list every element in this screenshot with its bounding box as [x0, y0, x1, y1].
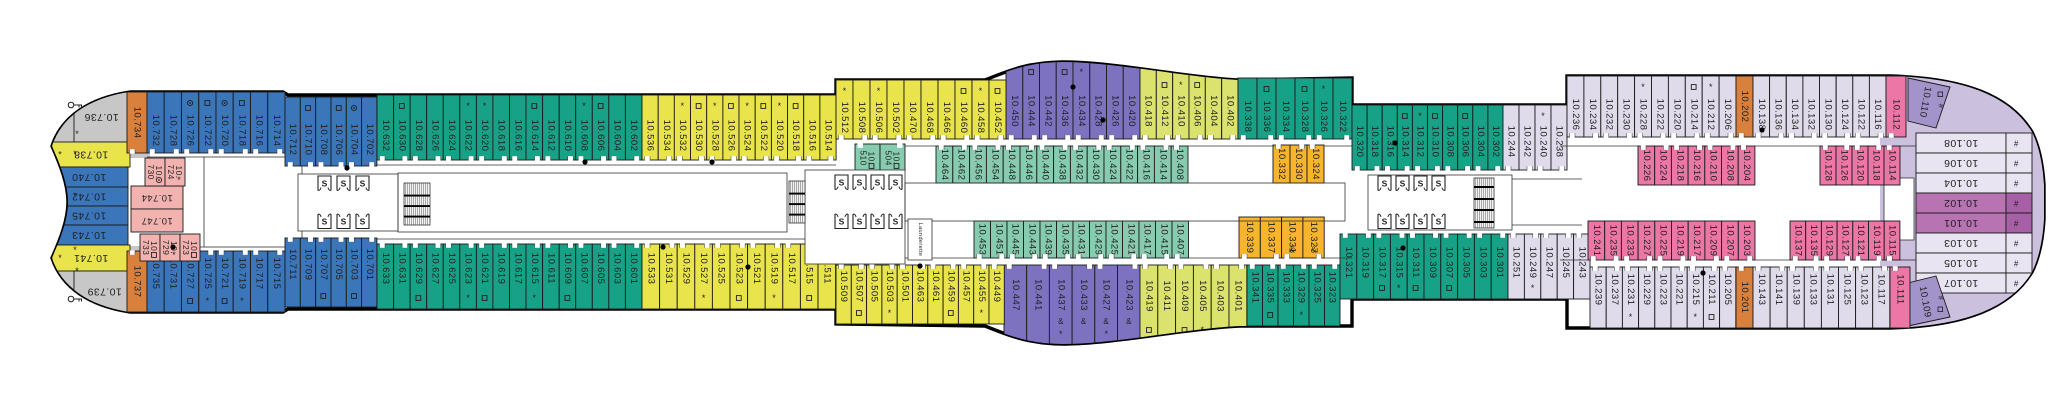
svg-text:10.449: 10.449: [991, 271, 1002, 303]
svg-text:10.411: 10.411: [1161, 280, 1172, 311]
svg-text:10.427: 10.427: [1101, 279, 1112, 311]
svg-text:10.526: 10.526: [725, 120, 736, 152]
svg-text:10.627: 10.627: [430, 253, 441, 285]
svg-text:*: *: [240, 296, 244, 306]
svg-text:10.238: 10.238: [1554, 126, 1565, 158]
svg-text:10.611: 10.611: [545, 253, 556, 284]
svg-text:10.621: 10.621: [479, 253, 490, 285]
svg-text:10.629: 10.629: [413, 253, 424, 285]
svg-text:10.115: 10.115: [1887, 225, 1898, 256]
svg-text:*: *: [1531, 283, 1535, 293]
svg-text:10.403: 10.403: [1215, 280, 1226, 312]
svg-text:10.458: 10.458: [975, 102, 986, 134]
svg-text:&: &: [1103, 317, 1109, 326]
svg-text:10.708: 10.708: [318, 124, 329, 156]
svg-text:*: *: [73, 149, 77, 159]
svg-text:*: *: [979, 86, 983, 96]
svg-text:10.321: 10.321: [1343, 247, 1354, 279]
svg-text:10.607: 10.607: [579, 253, 590, 285]
svg-text:10.531: 10.531: [663, 253, 674, 285]
svg-text:10.409: 10.409: [1179, 280, 1190, 312]
svg-text:*: *: [582, 101, 586, 111]
svg-text:S: S: [1400, 216, 1406, 226]
svg-text:10.202: 10.202: [1739, 91, 1750, 123]
svg-text:10.517: 10.517: [786, 253, 797, 285]
svg-text:10.532: 10.532: [677, 120, 688, 152]
svg-text:10.215: 10.215: [1690, 274, 1701, 306]
svg-text:*: *: [1059, 329, 1063, 339]
svg-text:*: *: [1080, 67, 1084, 77]
svg-text:10.468: 10.468: [924, 102, 935, 134]
svg-text:*: *: [713, 101, 717, 111]
svg-text:10.620: 10.620: [479, 120, 490, 152]
svg-text:*: *: [75, 129, 79, 139]
svg-text:10.426: 10.426: [1109, 95, 1120, 127]
svg-text:10.221: 10.221: [1674, 274, 1685, 306]
svg-text:#: #: [2013, 179, 2018, 188]
svg-text:10.742: 10.742: [72, 191, 107, 203]
svg-text:10.502: 10.502: [890, 102, 901, 134]
svg-text:10.402: 10.402: [1224, 95, 1235, 127]
svg-text:10.624: 10.624: [446, 120, 457, 152]
svg-text:10.205: 10.205: [1722, 274, 1733, 306]
svg-text:10.122: 10.122: [1856, 99, 1867, 131]
svg-text:*: *: [58, 253, 62, 263]
svg-text:10.207: 10.207: [1724, 225, 1735, 257]
svg-text:10.701: 10.701: [364, 249, 375, 281]
svg-text:*: *: [172, 250, 176, 260]
svg-text:*: *: [177, 175, 181, 185]
svg-text:*: *: [1629, 312, 1633, 322]
svg-text:10.707: 10.707: [318, 249, 329, 281]
svg-text:10.509: 10.509: [838, 271, 849, 303]
svg-text:10.240: 10.240: [1538, 126, 1549, 158]
svg-text:10.434: 10.434: [1076, 95, 1087, 127]
svg-text:10.606: 10.606: [595, 120, 606, 152]
svg-text:10.234: 10.234: [1587, 99, 1598, 131]
svg-text:10.227: 10.227: [1641, 225, 1652, 257]
svg-text:10.712: 10.712: [287, 124, 298, 156]
svg-text:10.533: 10.533: [645, 253, 656, 285]
svg-text:*: *: [843, 86, 847, 96]
svg-text:10.522: 10.522: [758, 120, 769, 152]
svg-text:10.134: 10.134: [1789, 99, 1800, 131]
svg-text:10.439: 10.439: [1043, 224, 1054, 256]
svg-text:10.319: 10.319: [1360, 247, 1371, 279]
svg-text:10.105: 10.105: [1944, 257, 1979, 269]
svg-text:10.108: 10.108: [1944, 137, 1979, 149]
svg-text:10.308: 10.308: [1445, 126, 1456, 158]
svg-text:10.324: 10.324: [1310, 148, 1321, 180]
svg-text:S: S: [341, 216, 347, 226]
svg-text:10.459: 10.459: [945, 271, 956, 303]
svg-text:*: *: [1179, 80, 1183, 90]
svg-text:10.336: 10.336: [1261, 101, 1272, 133]
svg-text:S: S: [360, 178, 366, 188]
svg-text:10.304: 10.304: [1475, 126, 1486, 158]
svg-text:10.138: 10.138: [1756, 99, 1767, 131]
svg-text:&: &: [1126, 317, 1132, 326]
svg-text:10.631: 10.631: [396, 253, 407, 285]
svg-text:*: *: [772, 293, 776, 303]
svg-text:10.608: 10.608: [579, 120, 590, 152]
svg-text:10.236: 10.236: [1570, 99, 1581, 131]
svg-text:10.450: 10.450: [1009, 95, 1020, 127]
svg-text:10.116: 10.116: [1872, 99, 1883, 130]
svg-text:10.732: 10.732: [150, 115, 161, 147]
svg-text:10.717: 10.717: [254, 258, 265, 290]
svg-text:724: 724: [166, 164, 176, 179]
svg-text:10.623: 10.623: [463, 253, 474, 285]
svg-text:10.610: 10.610: [562, 120, 573, 152]
svg-text:10.328: 10.328: [1299, 101, 1310, 133]
svg-text:10.322: 10.322: [1337, 101, 1348, 133]
svg-text:10.453: 10.453: [977, 224, 988, 256]
svg-text:10.245: 10.245: [1560, 247, 1571, 279]
svg-text:10.139: 10.139: [1790, 274, 1801, 306]
svg-text:10.219: 10.219: [1674, 225, 1685, 257]
svg-text:10.117: 10.117: [1876, 274, 1887, 305]
svg-text:10.339: 10.339: [1244, 222, 1255, 254]
svg-text:10.741: 10.741: [74, 252, 109, 264]
svg-text:10.104: 10.104: [1944, 177, 1979, 189]
svg-text:10.214: 10.214: [1688, 99, 1699, 131]
svg-text:10.437: 10.437: [1055, 279, 1066, 311]
svg-text:10.243: 10.243: [1576, 247, 1587, 279]
svg-text:10.217: 10.217: [1691, 225, 1702, 257]
svg-text:10.452: 10.452: [992, 102, 1003, 134]
svg-text:&: &: [1058, 317, 1064, 326]
svg-text:10.237: 10.237: [1609, 274, 1620, 306]
svg-text:10.408: 10.408: [1174, 149, 1185, 181]
svg-text:10.508: 10.508: [856, 102, 867, 134]
svg-text:10.128: 10.128: [1823, 150, 1834, 182]
svg-text:*: *: [533, 293, 537, 303]
svg-text:*: *: [877, 86, 881, 96]
svg-text:10.325: 10.325: [1311, 272, 1322, 304]
svg-text:10.617: 10.617: [512, 253, 523, 285]
svg-text:10.209: 10.209: [1708, 225, 1719, 257]
svg-text:10.506: 10.506: [873, 102, 884, 134]
svg-text:10.536: 10.536: [645, 120, 656, 152]
svg-text:*: *: [1709, 82, 1713, 92]
svg-text:#: #: [2013, 139, 2018, 148]
svg-text:10.129: 10.129: [1824, 225, 1835, 257]
svg-text:10.208: 10.208: [1724, 150, 1735, 182]
svg-text:10.229: 10.229: [1641, 274, 1652, 306]
svg-text:10.223: 10.223: [1657, 274, 1668, 306]
svg-text:10.220: 10.220: [1671, 99, 1682, 131]
svg-text:&: &: [1311, 246, 1317, 255]
svg-text:10.719: 10.719: [236, 258, 247, 290]
svg-text:S: S: [1382, 178, 1388, 188]
svg-text:10.332: 10.332: [1276, 148, 1287, 180]
svg-text:*: *: [1322, 84, 1326, 94]
svg-text:504: 504: [884, 150, 894, 165]
svg-text:*: *: [1397, 283, 1401, 293]
svg-text:10.447: 10.447: [1010, 279, 1021, 311]
svg-text:10.127: 10.127: [1839, 225, 1850, 257]
svg-text:S: S: [893, 216, 899, 226]
svg-text:10.464: 10.464: [939, 149, 950, 181]
svg-text:*: *: [73, 191, 77, 201]
svg-text:10.422: 10.422: [1124, 149, 1135, 181]
svg-text:10.418: 10.418: [1143, 95, 1154, 127]
svg-text:10.206: 10.206: [1722, 99, 1733, 131]
svg-text:*: *: [483, 101, 487, 111]
svg-text:10.711: 10.711: [287, 249, 298, 280]
svg-text:10.728: 10.728: [167, 115, 178, 147]
svg-text:10.401: 10.401: [1232, 280, 1243, 312]
svg-text:10.335: 10.335: [1265, 272, 1276, 304]
svg-text:10.416: 10.416: [1141, 149, 1152, 181]
svg-text:10.312: 10.312: [1415, 126, 1426, 158]
svg-text:10.736: 10.736: [84, 111, 119, 123]
svg-text:10.417: 10.417: [1142, 224, 1153, 256]
svg-text:10.710: 10.710: [303, 124, 314, 156]
svg-text:10.731: 10.731: [167, 258, 178, 290]
svg-text:10.425: 10.425: [1109, 224, 1120, 256]
svg-text:10.460: 10.460: [958, 102, 969, 134]
svg-text:10.305: 10.305: [1461, 247, 1472, 279]
svg-text:10.628: 10.628: [413, 120, 424, 152]
svg-text:10.412: 10.412: [1159, 95, 1170, 127]
svg-text:10.135: 10.135: [1808, 225, 1819, 257]
svg-text:10.735: 10.735: [150, 258, 161, 290]
svg-text:10.528: 10.528: [709, 120, 720, 152]
svg-text:10.716: 10.716: [254, 115, 265, 147]
svg-text:10.309: 10.309: [1427, 247, 1438, 279]
svg-text:10.211: 10.211: [1706, 274, 1717, 305]
svg-text:10.430: 10.430: [1090, 149, 1101, 181]
svg-text:10.461: 10.461: [930, 271, 941, 303]
svg-text:10.715: 10.715: [271, 258, 282, 290]
svg-text:10.228: 10.228: [1638, 99, 1649, 131]
svg-text:S: S: [893, 177, 899, 187]
svg-text:10.103: 10.103: [1944, 237, 1979, 249]
svg-text:10.111: 10.111: [1895, 274, 1906, 304]
svg-text:10.141: 10.141: [1773, 274, 1784, 306]
svg-text:10.239: 10.239: [1593, 274, 1604, 306]
svg-text:10.745: 10.745: [72, 210, 107, 222]
svg-text:10.338: 10.338: [1242, 101, 1253, 133]
svg-text:10.106: 10.106: [1944, 157, 1979, 169]
svg-text:#: #: [2013, 239, 2018, 248]
svg-text:10.519: 10.519: [769, 253, 780, 285]
svg-text:S: S: [1418, 216, 1424, 226]
svg-text:10.616: 10.616: [512, 120, 523, 152]
svg-text:10.470: 10.470: [907, 102, 918, 134]
svg-text:10.604: 10.604: [612, 120, 623, 152]
svg-text:Launderette: Launderette: [917, 223, 923, 257]
svg-text:723: 723: [181, 240, 191, 255]
svg-text:#: #: [2013, 279, 2018, 288]
svg-text:10.455: 10.455: [976, 271, 987, 303]
svg-text:&: &: [1290, 246, 1296, 255]
svg-text:10.233: 10.233: [1624, 225, 1635, 257]
svg-text:10.622: 10.622: [463, 120, 474, 152]
svg-text:S: S: [1400, 178, 1406, 188]
svg-text:10.466: 10.466: [941, 102, 952, 134]
svg-text:S: S: [1382, 216, 1388, 226]
svg-text:10.630: 10.630: [396, 120, 407, 152]
svg-text:*: *: [466, 101, 470, 111]
svg-text:10.431: 10.431: [1076, 224, 1087, 256]
svg-text:10.432: 10.432: [1073, 149, 1084, 181]
svg-text:10.334: 10.334: [1280, 101, 1291, 133]
svg-text:S: S: [875, 216, 881, 226]
svg-text:10.120: 10.120: [1855, 150, 1866, 182]
svg-text:10.726: 10.726: [185, 115, 196, 147]
svg-text:10.315: 10.315: [1393, 247, 1404, 279]
svg-text:10.632: 10.632: [380, 120, 391, 152]
svg-text:10.703: 10.703: [349, 249, 360, 281]
svg-text:10.602: 10.602: [628, 120, 639, 152]
svg-text:S: S: [875, 177, 881, 187]
svg-text:10.143: 10.143: [1756, 274, 1767, 306]
svg-text:10.232: 10.232: [1604, 99, 1615, 131]
svg-text:10.503: 10.503: [884, 271, 895, 303]
svg-text:10.507: 10.507: [853, 271, 864, 303]
svg-text:10.747: 10.747: [141, 215, 172, 226]
svg-text:10.443: 10.443: [1026, 224, 1037, 256]
svg-text:S: S: [857, 216, 863, 226]
svg-text:10.414: 10.414: [1157, 149, 1168, 181]
svg-text:10.626: 10.626: [430, 120, 441, 152]
svg-text:10.442: 10.442: [1042, 95, 1053, 127]
svg-text:10.514: 10.514: [823, 120, 834, 152]
svg-text:10.501: 10.501: [899, 271, 910, 303]
svg-text:733: 733: [141, 240, 151, 255]
svg-text:*: *: [681, 101, 685, 111]
svg-text:10.326: 10.326: [1318, 101, 1329, 133]
svg-text:10.739: 10.739: [87, 286, 122, 298]
svg-text:10.330: 10.330: [1293, 148, 1304, 180]
svg-text:S: S: [360, 216, 366, 226]
svg-text:10.446: 10.446: [1023, 149, 1034, 181]
svg-text:10.612: 10.612: [545, 120, 556, 152]
svg-text:*: *: [888, 308, 892, 318]
svg-text:10.743: 10.743: [72, 229, 107, 241]
svg-text:10.303: 10.303: [1477, 247, 1488, 279]
svg-text:*: *: [980, 308, 984, 318]
svg-text:10.130: 10.130: [1822, 99, 1833, 131]
svg-text:10.714: 10.714: [271, 115, 282, 147]
svg-text:10.429: 10.429: [1092, 224, 1103, 256]
svg-text:10.463: 10.463: [915, 271, 926, 303]
svg-text:10.525: 10.525: [716, 253, 727, 285]
svg-text:10.123: 10.123: [1859, 274, 1870, 306]
svg-text:10.433: 10.433: [1078, 279, 1089, 311]
svg-text:10.445: 10.445: [1010, 224, 1021, 256]
svg-text:10.725: 10.725: [202, 258, 213, 290]
svg-text:10.462: 10.462: [956, 149, 967, 181]
svg-text:#: #: [2013, 199, 2018, 208]
svg-text:S: S: [341, 178, 347, 188]
svg-text:10.420: 10.420: [1126, 95, 1137, 127]
svg-text:10.241: 10.241: [1591, 225, 1602, 257]
svg-text:10.527: 10.527: [698, 253, 709, 285]
svg-text:*: *: [1299, 310, 1303, 320]
svg-text:10.454: 10.454: [989, 149, 1000, 181]
svg-text:10.521: 10.521: [751, 253, 762, 285]
svg-text:10.529: 10.529: [681, 253, 692, 285]
svg-text:10.136: 10.136: [1772, 99, 1783, 131]
svg-text:10.226: 10.226: [1641, 150, 1652, 182]
svg-text:10.307: 10.307: [1444, 247, 1455, 279]
svg-text:10.448: 10.448: [1006, 149, 1017, 181]
svg-text:10.301: 10.301: [1494, 247, 1505, 279]
svg-text:10.114: 10.114: [1887, 150, 1898, 181]
svg-text:10.212: 10.212: [1705, 99, 1716, 131]
svg-text:10.341: 10.341: [1249, 272, 1260, 304]
svg-text:10.436: 10.436: [1059, 95, 1070, 127]
svg-text:10.118: 10.118: [1871, 150, 1882, 181]
svg-text:10.317: 10.317: [1377, 247, 1388, 279]
svg-text:S: S: [839, 216, 845, 226]
svg-text:10.101: 10.101: [1944, 217, 1979, 229]
svg-text:510: 510: [859, 150, 869, 165]
svg-text:10.249: 10.249: [1527, 247, 1538, 279]
svg-text:*: *: [466, 293, 470, 303]
svg-text:10.702: 10.702: [364, 124, 375, 156]
svg-text:10.704: 10.704: [349, 124, 360, 156]
svg-text:10.633: 10.633: [380, 253, 391, 285]
svg-text:10.423: 10.423: [1123, 279, 1134, 311]
svg-text:10.609: 10.609: [562, 253, 573, 285]
svg-text:10.318: 10.318: [1369, 126, 1380, 158]
svg-text:*: *: [778, 101, 782, 111]
svg-text:10.302: 10.302: [1490, 126, 1501, 158]
svg-text:*: *: [1641, 82, 1645, 92]
svg-text:10.230: 10.230: [1621, 99, 1632, 131]
svg-text:10.625: 10.625: [446, 253, 457, 285]
svg-text:10.530: 10.530: [693, 120, 704, 152]
svg-text:10.740: 10.740: [72, 171, 107, 183]
svg-text:10.505: 10.505: [869, 271, 880, 303]
svg-text:10.718: 10.718: [236, 115, 247, 147]
svg-text:S: S: [1436, 178, 1442, 188]
svg-text:10.457: 10.457: [961, 271, 972, 303]
svg-text:*: *: [206, 296, 210, 306]
svg-text:10.440: 10.440: [1040, 149, 1051, 181]
svg-text:10.614: 10.614: [529, 120, 540, 152]
svg-text:10.407: 10.407: [1175, 224, 1186, 256]
svg-text:10.306: 10.306: [1460, 126, 1471, 158]
svg-text:10.404: 10.404: [1208, 95, 1219, 127]
svg-text:#: #: [2013, 259, 2018, 268]
svg-text:S: S: [1418, 178, 1424, 188]
svg-text:10.222: 10.222: [1655, 99, 1666, 131]
svg-text:10.516: 10.516: [806, 120, 817, 152]
svg-text:10.124: 10.124: [1839, 99, 1850, 131]
svg-text:10.244: 10.244: [1506, 126, 1517, 158]
svg-text:10.734: 10.734: [132, 107, 143, 139]
svg-text:10.722: 10.722: [202, 115, 213, 147]
svg-text:10.523: 10.523: [733, 253, 744, 285]
svg-text:*: *: [58, 149, 62, 159]
svg-text:10.444: 10.444: [1026, 95, 1037, 127]
svg-text:*: *: [1541, 111, 1545, 121]
svg-text:10.133: 10.133: [1807, 274, 1818, 306]
svg-text:10.224: 10.224: [1658, 150, 1669, 182]
svg-text:S: S: [322, 216, 328, 226]
svg-text:10.112: 10.112: [1891, 99, 1902, 130]
svg-text:10.216: 10.216: [1691, 150, 1702, 182]
svg-text:10.132: 10.132: [1806, 99, 1817, 131]
svg-text:10.235: 10.235: [1608, 225, 1619, 257]
svg-text:*: *: [1418, 111, 1422, 121]
